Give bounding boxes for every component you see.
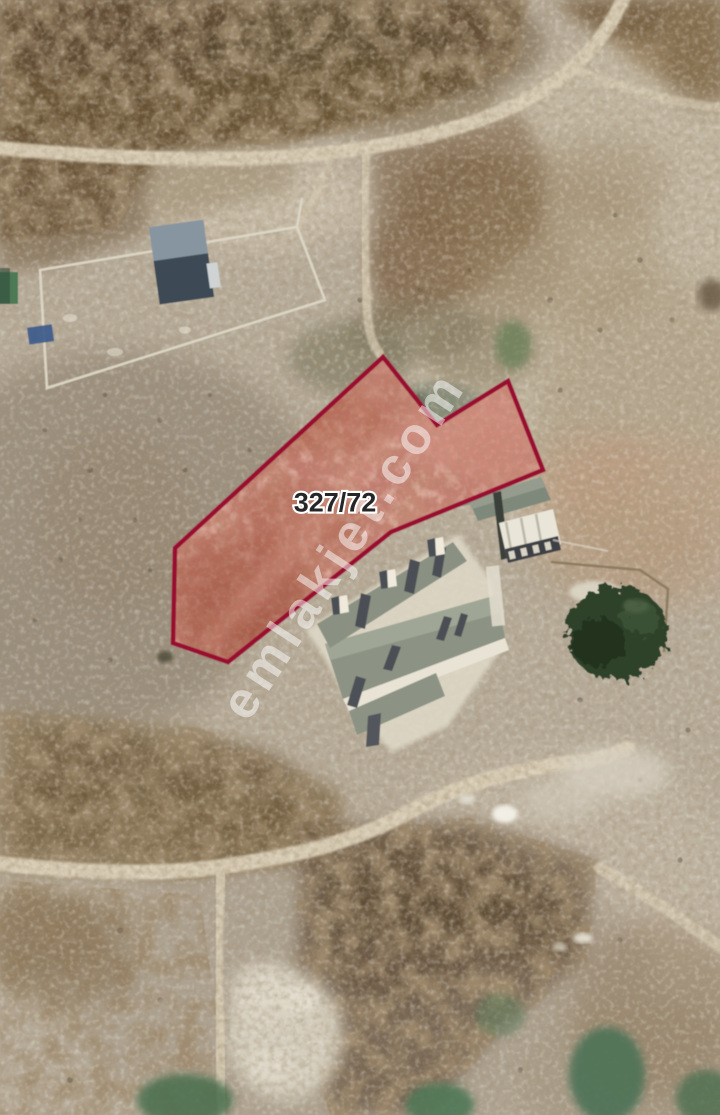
svg-text:327/72: 327/72 xyxy=(294,488,377,518)
